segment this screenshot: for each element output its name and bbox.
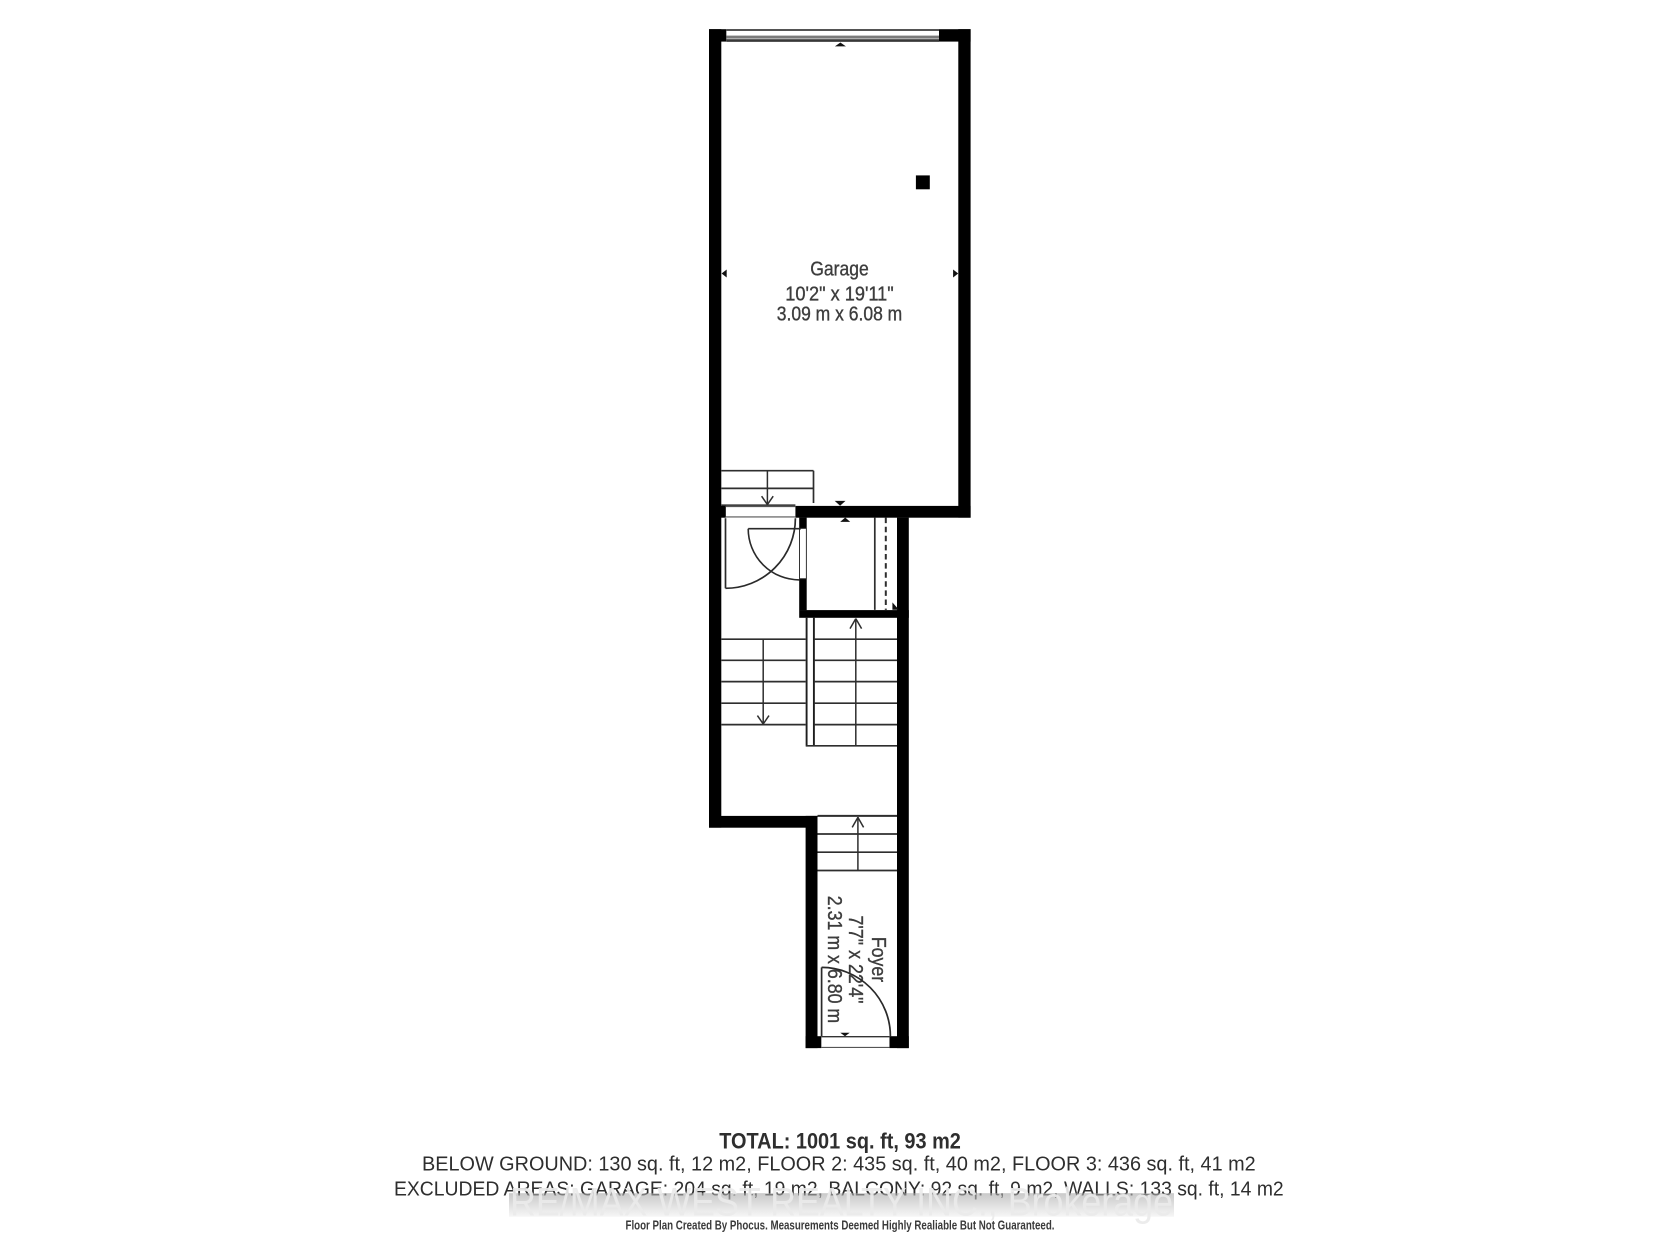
svg-text:10'2" x 19'11": 10'2" x 19'11" — [785, 283, 894, 305]
svg-text:3.09 m x 6.08 m: 3.09 m x 6.08 m — [777, 303, 903, 325]
svg-text:Foyer: Foyer — [867, 937, 889, 983]
svg-text:Garage: Garage — [810, 258, 869, 280]
svg-text:BELOW GROUND: 130 sq. ft, 12 m: BELOW GROUND: 130 sq. ft, 12 m2, FLOOR 2… — [422, 1153, 1256, 1175]
svg-text:Floor Plan Created By Phocus.: Floor Plan Created By Phocus. Measuremen… — [626, 1219, 1055, 1233]
svg-text:TOTAL: 1001 sq. ft, 93 m2: TOTAL: 1001 sq. ft, 93 m2 — [719, 1128, 961, 1153]
svg-text:7'7" x 22'4": 7'7" x 22'4" — [844, 916, 866, 1004]
svg-text:2.31 m x 6.80 m: 2.31 m x 6.80 m — [823, 896, 845, 1023]
